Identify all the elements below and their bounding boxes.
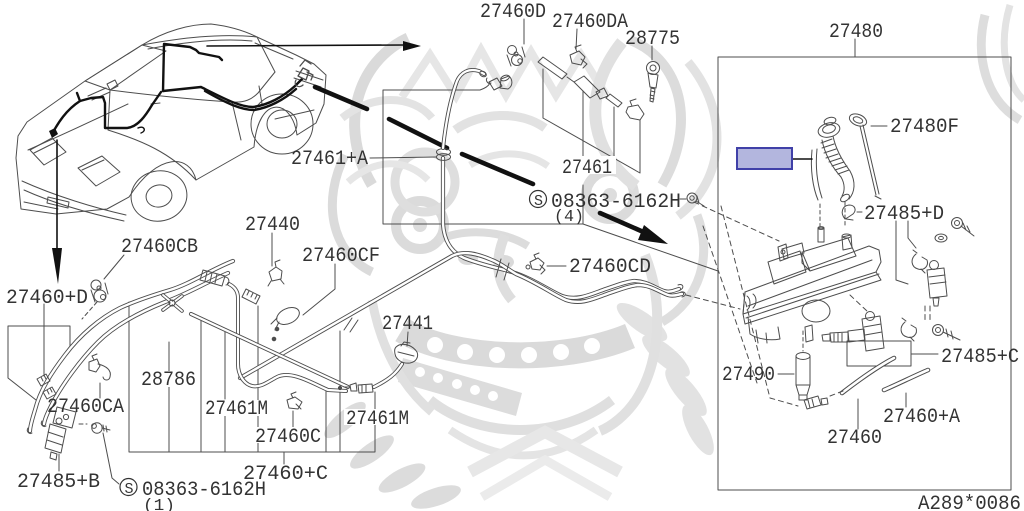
svg-text:(1): (1): [143, 497, 175, 511]
svg-text:27461M: 27461M: [346, 408, 409, 431]
svg-text:27485+B: 27485+B: [17, 471, 100, 494]
svg-text:27460DA: 27460DA: [552, 11, 628, 34]
svg-text:27461+A: 27461+A: [291, 148, 368, 171]
svg-text:27440: 27440: [245, 214, 300, 237]
svg-text:(4): (4): [554, 208, 584, 227]
svg-text:27490: 27490: [722, 364, 775, 387]
svg-text:28786: 28786: [141, 369, 196, 392]
svg-text:27460+A: 27460+A: [883, 406, 960, 429]
svg-text:27460CB: 27460CB: [121, 236, 198, 259]
svg-text:27441: 27441: [382, 313, 433, 336]
svg-text:27460+C: 27460+C: [243, 463, 328, 486]
svg-text:27480F: 27480F: [890, 116, 959, 139]
svg-text:S: S: [125, 481, 134, 498]
svg-text:27460CA: 27460CA: [47, 396, 124, 419]
svg-text:27460: 27460: [827, 427, 882, 450]
svg-text:27460CF: 27460CF: [302, 245, 380, 268]
svg-text:27480: 27480: [829, 21, 883, 44]
svg-text:A289*0086: A289*0086: [918, 493, 1021, 511]
svg-text:27461: 27461: [562, 157, 612, 180]
svg-text:27460CD: 27460CD: [569, 256, 651, 279]
svg-text:27485+D: 27485+D: [864, 203, 944, 226]
svg-text:28775: 28775: [625, 28, 680, 51]
svg-text:27460+D: 27460+D: [6, 287, 88, 310]
svg-text:27460C: 27460C: [255, 426, 321, 449]
svg-text:S: S: [534, 193, 543, 210]
svg-text:27485+C: 27485+C: [941, 346, 1019, 369]
svg-text:27460D: 27460D: [480, 1, 546, 24]
svg-text:27461M: 27461M: [205, 398, 268, 421]
